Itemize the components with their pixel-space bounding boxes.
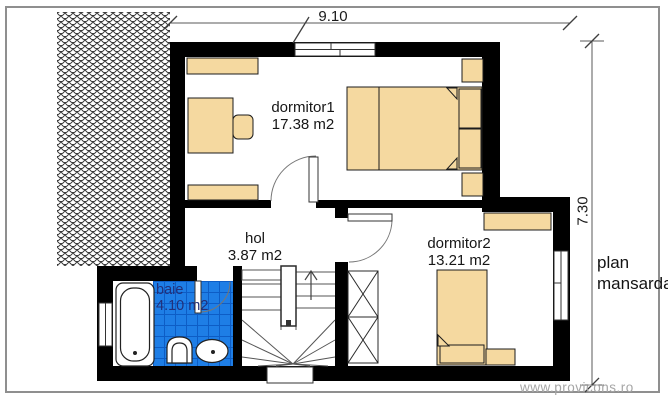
plan-title-line1: plan: [597, 252, 668, 273]
room-name: dormitor2: [427, 235, 490, 252]
wall-dormitor1-hol-right: [316, 200, 482, 208]
room-name: dormitor1: [271, 99, 334, 116]
room-area: 3.87 m2: [228, 247, 282, 264]
wall-baie-stairs: [233, 266, 242, 366]
room-area: 13.21 m2: [427, 252, 490, 269]
room-name: baie: [156, 282, 208, 298]
wall-right: [553, 197, 570, 381]
room-label-baie: baie 4.10 m2: [156, 282, 208, 314]
watermark: www.provicons.ro: [520, 380, 634, 395]
dimension-label-height: 7.30: [575, 196, 592, 225]
wall-top: [170, 42, 500, 57]
wall-stub-dormitor2: [335, 208, 348, 218]
room-area: 17.38 m2: [271, 116, 334, 133]
floor-plan-canvas: dormitor1 17.38 m2 dormitor2 13.21 m2 ho…: [0, 0, 668, 400]
plan-title: plan mansarda: [597, 252, 668, 294]
room-label-hol: hol 3.87 m2: [228, 230, 282, 264]
dimension-label-width: 9.10: [318, 8, 347, 25]
roof-hatch-pattern: [57, 12, 170, 266]
wall-baie-left: [97, 266, 113, 381]
room-label-dormitor2: dormitor2 13.21 m2: [427, 235, 490, 269]
plan-title-line2: mansarda: [597, 273, 668, 294]
room-label-dormitor1: dormitor1 17.38 m2: [271, 99, 334, 133]
wall-right-upper: [482, 42, 500, 212]
wall-bottom: [97, 366, 570, 381]
room-name: hol: [228, 230, 282, 247]
room-area: 4.10 m2: [156, 298, 208, 314]
wall-dormitor1-hol-left: [185, 200, 271, 208]
wall-baie-top: [97, 266, 197, 281]
wall-left: [170, 42, 185, 281]
wall-hol-dormitor2: [335, 262, 348, 366]
